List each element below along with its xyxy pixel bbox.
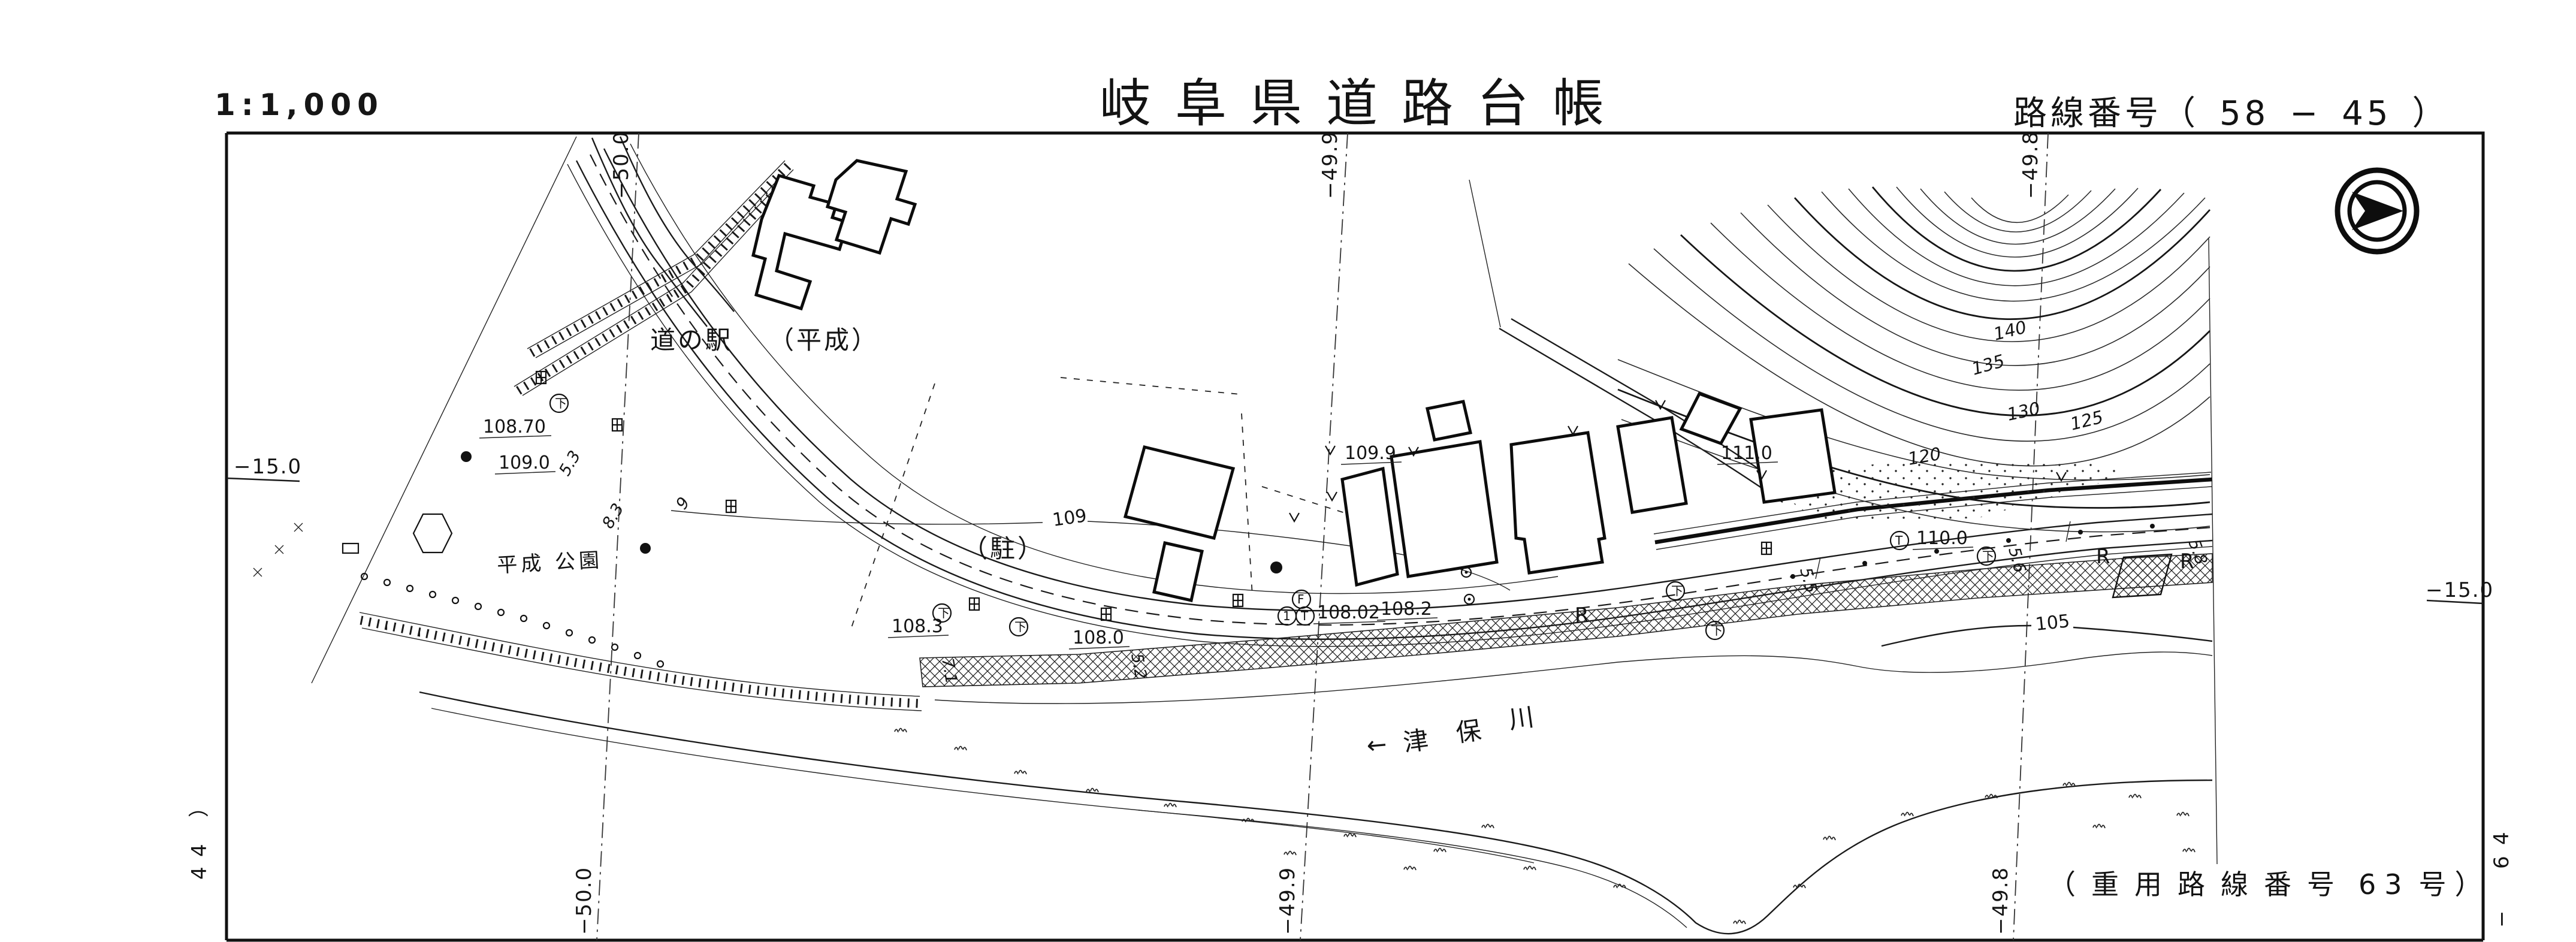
building (1342, 469, 1397, 585)
utility-symbol-glyph: F (1297, 592, 1304, 606)
station-label-bottom: −50.0 (572, 866, 596, 935)
property-lines (851, 378, 1390, 629)
r-label: R (1575, 603, 1589, 627)
river-name-char: 津 (1402, 724, 1433, 757)
station-label-bottom: −49.9 (1276, 866, 1300, 935)
dimension-label: 9 (672, 494, 693, 513)
contour-label: 130 (2005, 398, 2042, 425)
roadside-station-name: （平成） (769, 325, 879, 355)
spot-elevation: 109 (1051, 505, 1088, 531)
station-label-bottom: −49.8 (1989, 866, 2013, 935)
contour-label: 135 (1970, 351, 2007, 379)
building (828, 161, 915, 253)
parking-label: （駐） (962, 534, 1045, 563)
spot-elevation: 108.70 (483, 416, 546, 437)
sheet-ref-left: 4 (188, 844, 212, 857)
drain-box-symbol (1101, 608, 1111, 620)
drain-box-symbol (1233, 594, 1243, 606)
utility-symbol-glyph: 下 (1711, 623, 1723, 638)
r-label: R (2180, 549, 2194, 573)
drain-box-symbol (726, 500, 736, 512)
survey-edge-line (2209, 238, 2217, 864)
map-canvas: 道の駅 （平成） 平成 公園 （駐） ← 津 保 川 −50.0−50.0−49… (0, 0, 2576, 942)
survey-boundary-line (312, 137, 576, 683)
gazebo-hexagon (413, 514, 452, 552)
boundary-line (1469, 180, 1500, 327)
building (1391, 442, 1497, 576)
dimension-label: 8.3 (599, 500, 627, 532)
river-name-char: 保 (1454, 715, 1485, 748)
contour-lines (1618, 187, 2210, 532)
spot-elevation: 110.0 (1916, 528, 1968, 549)
park-fence (253, 523, 663, 667)
north-compass-icon (2338, 170, 2417, 252)
r-label: R (2096, 545, 2110, 569)
sheet-ref-left: ） (188, 797, 212, 817)
building (1427, 401, 1470, 440)
sheet-ref-left: 4 (188, 866, 212, 880)
station-section-lines (597, 133, 2048, 940)
utility-symbol-glyph: T (1895, 533, 1903, 548)
road-ledger-sheet: 1:1,000 岐阜県道路台帳 路線番号（58−45） （重用路線番号63号） (0, 0, 2576, 942)
utility-symbol-glyph: 下 (1671, 584, 1683, 598)
spot-elevation: 109.0 (499, 452, 550, 473)
building (1618, 418, 1686, 512)
sheet-ref-right: 4 (2490, 832, 2514, 845)
station-label-top: −49.9 (1318, 131, 1342, 199)
sheet-ref-right: 6 (2490, 856, 2514, 869)
park-edge-band (360, 612, 922, 711)
drain-box-symbol (1762, 542, 1771, 554)
drain-box-symbol (970, 598, 979, 610)
river-name-char: 川 (1507, 702, 1538, 735)
station-line (2013, 133, 2048, 940)
station-label-left: −15.0 (234, 455, 302, 479)
spot-elevation: 111.0 (1721, 443, 1772, 464)
utility-symbol-glyph: 下 (1982, 549, 1994, 563)
spot-elevation: 109.9 (1345, 443, 1396, 464)
utility-symbol-glyph: 下 (555, 396, 567, 410)
spot-elevation: 108.02 (1317, 602, 1380, 623)
station-line (1300, 133, 1348, 940)
station-label-top: −50.0 (609, 131, 633, 199)
sheet-ref-right: − (2490, 911, 2514, 928)
utility-symbol-glyph: 1 (1283, 609, 1291, 623)
station-label-right: −15.0 (2426, 578, 2494, 602)
spot-elevation: 108.2 (1381, 599, 1432, 620)
building (1681, 394, 1740, 443)
utility-symbol-glyph: T (1300, 609, 1309, 623)
contour-label: 140 (1991, 316, 2028, 344)
utility-symbol-glyph: 下 (938, 606, 950, 620)
river-flow-arrow: ← (1366, 730, 1388, 760)
utility-symbol-glyph: 下 (1014, 620, 1026, 634)
park-label: 平成 公園 (496, 548, 603, 578)
roadside-station-label: 道の駅 (650, 325, 733, 355)
dimension-label: 5.3 (555, 448, 584, 479)
building (1511, 433, 1605, 573)
station-label-top: −49.8 (2019, 131, 2043, 199)
building (1154, 543, 1202, 600)
small-structure (343, 544, 358, 553)
drain-box-symbol (612, 419, 622, 431)
spot-elevation: 108.0 (1073, 627, 1124, 648)
parking-hatched-bands (514, 161, 793, 395)
spot-elevation: 105 (2034, 611, 2071, 635)
